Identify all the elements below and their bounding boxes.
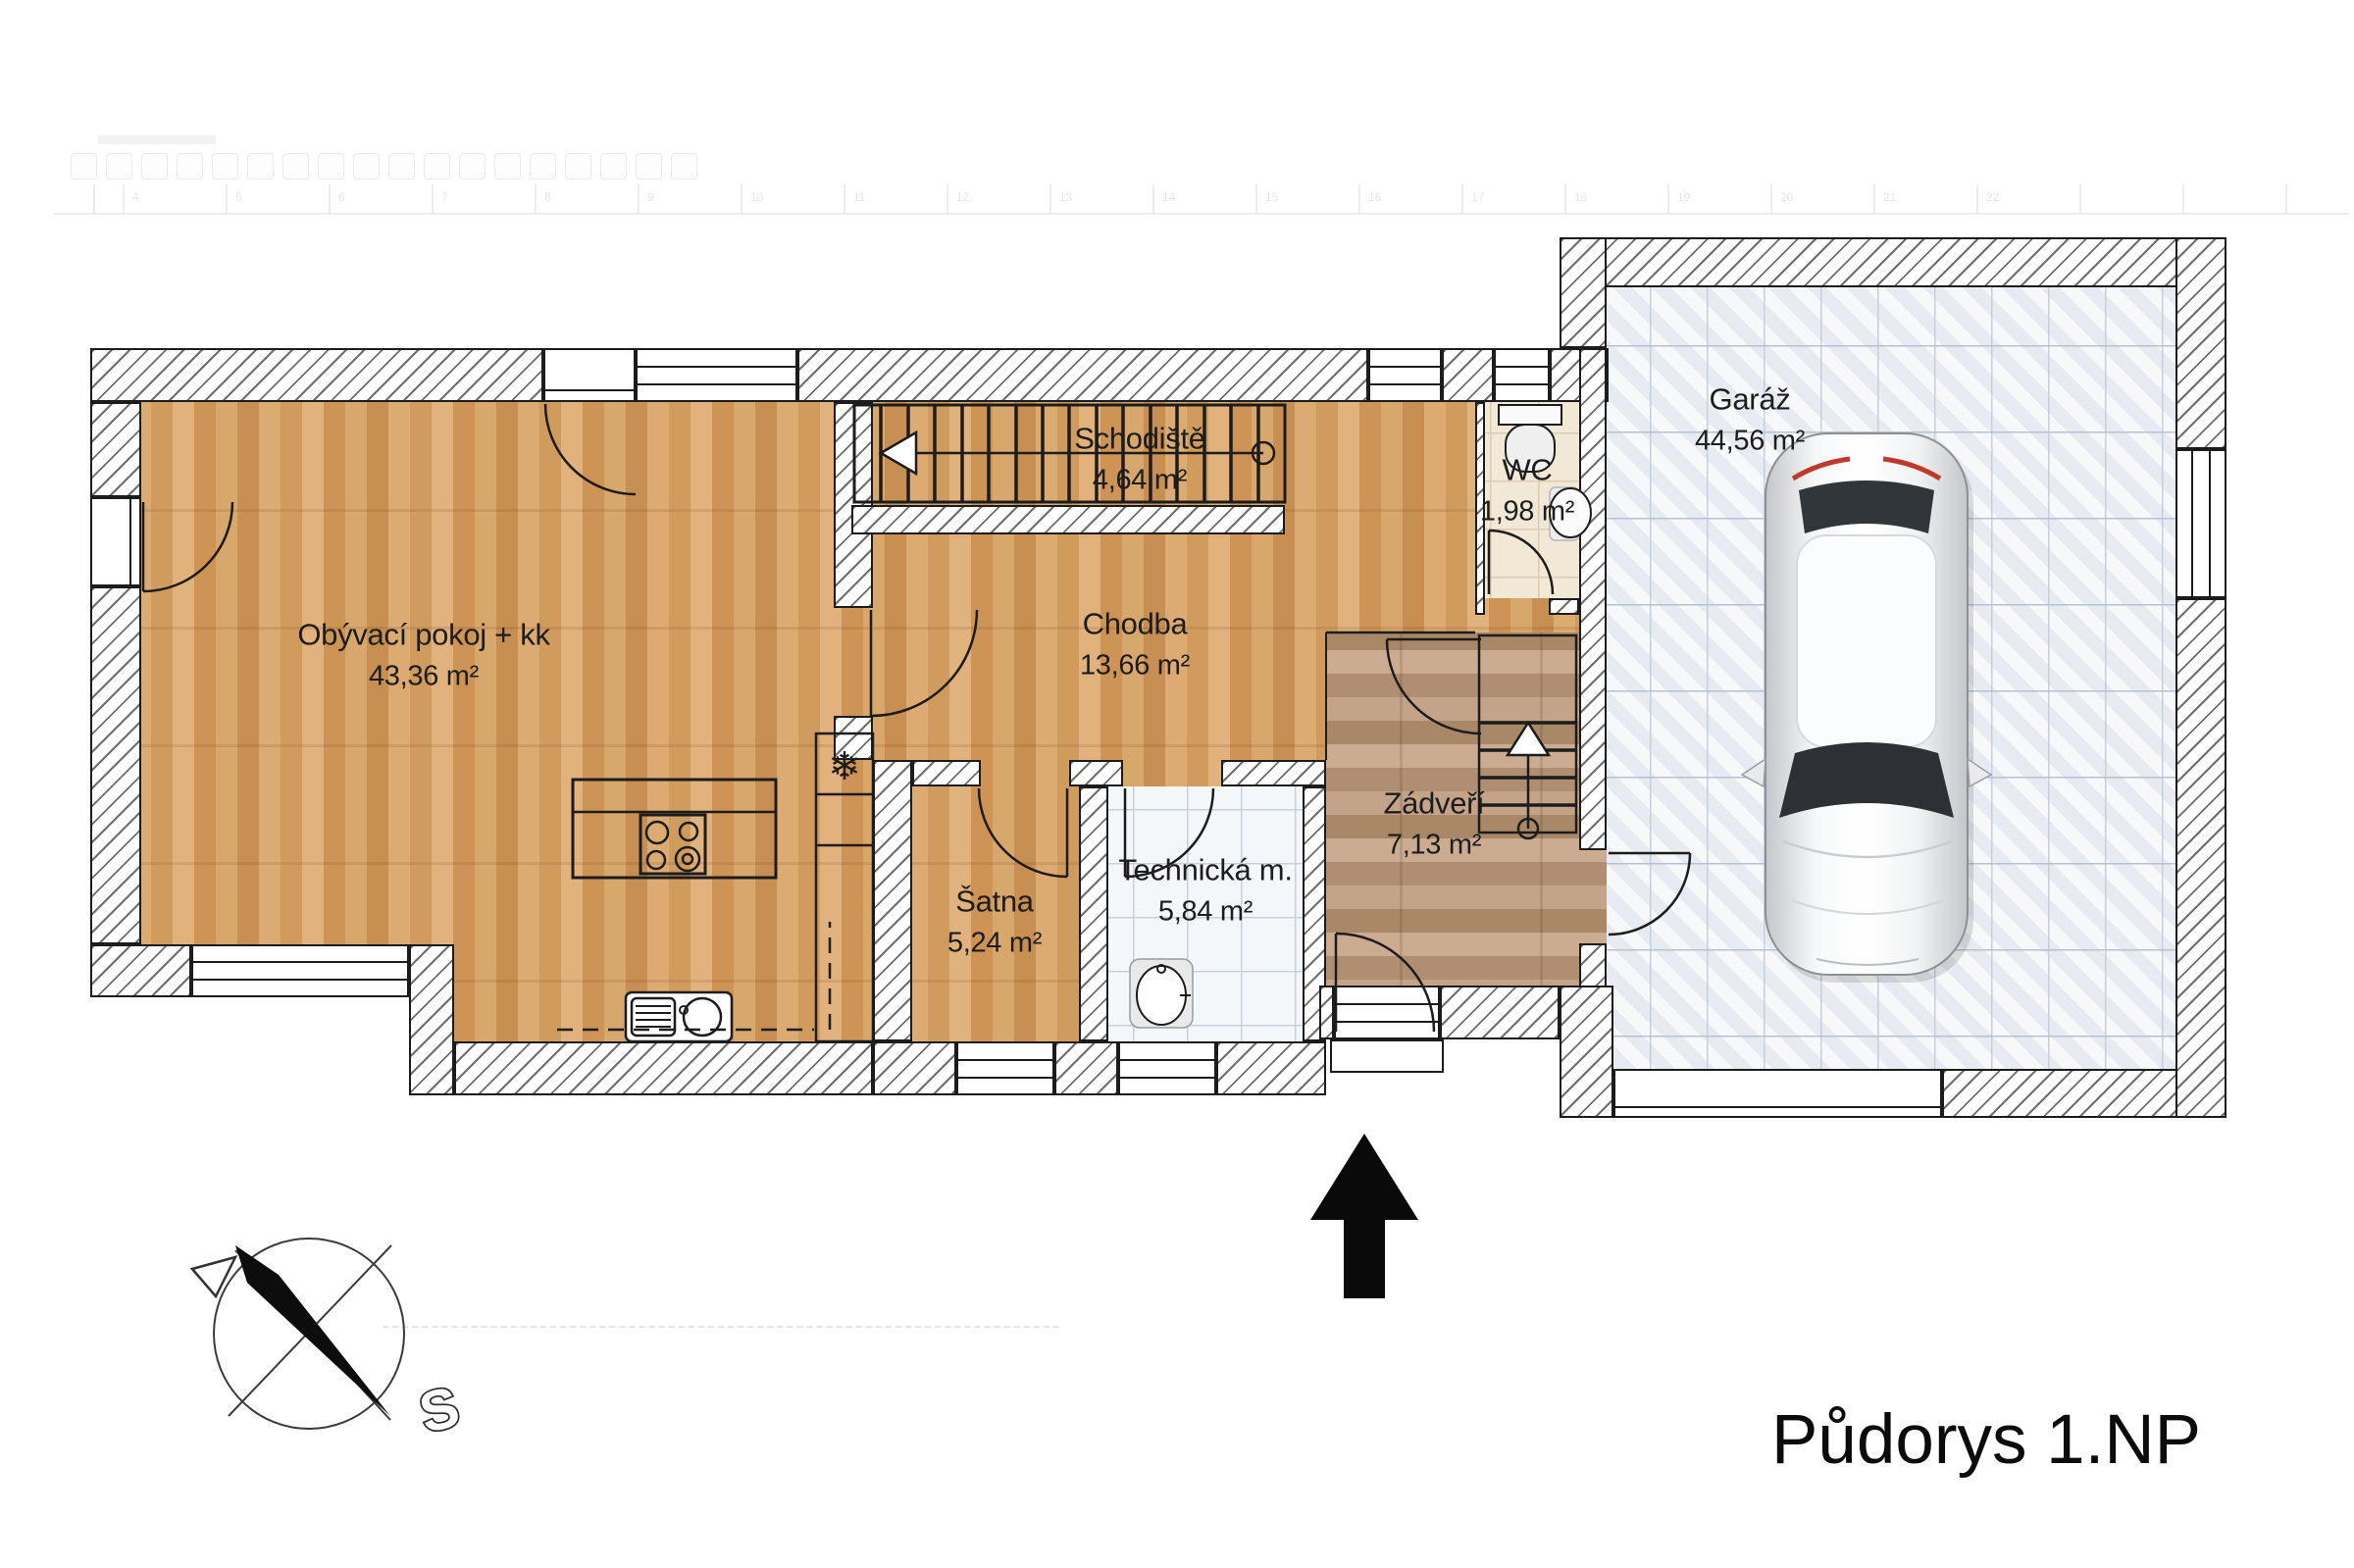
car-roof [1797,535,1936,747]
staircase-treads [854,405,1285,502]
room-name: Zádveří [1384,786,1485,821]
room-area: 7,13 m² [1384,825,1485,864]
fridge-snowflake-icon: ❄ [828,745,861,788]
plan-linework: ❄ [0,0,2354,1568]
door-swings [143,404,1690,1032]
wardrobe-door-arc [979,788,1067,877]
compass-north-icon: S [192,1239,466,1445]
balcony-door-arc [143,502,232,591]
room-label-technical: Technická m. 5,84 m² [1118,850,1292,932]
room-label-entry: Zádveří 7,13 m² [1384,784,1485,865]
room-area: 44,56 m² [1695,421,1805,460]
room-area: 13,66 m² [1080,645,1190,684]
kitchen-sink-icon [626,992,732,1041]
side-mirror-icon [1968,759,1991,786]
terrace-door-arc [545,404,636,494]
wc-door-arc [1489,531,1553,594]
car-top-view [1742,433,1991,983]
room-area: 43,36 m² [297,656,549,695]
room-area: 1,98 m² [1480,491,1574,531]
room-name: Schodiště [1074,422,1204,456]
drawing-title: Půdorys 1.NP [1771,1400,2201,1480]
entrance-arrow-icon [1310,1134,1418,1298]
living-hall-door-arc [871,610,977,716]
room-name: Garáž [1710,382,1791,417]
room-label-stairs: Schodiště 4,64 m² [1074,419,1204,500]
kitchen-island [573,780,776,878]
technical-sink-icon [1130,959,1193,1028]
toilet-tank-icon [1499,405,1561,425]
hall-entry-door-arc [1387,639,1481,733]
room-name: Obývací pokoj + kk [297,618,549,652]
room-name: WC [1502,453,1552,487]
entry-garage-door-arc [1609,853,1690,935]
entry-stairs [1479,635,1576,838]
room-name: Chodba [1083,607,1188,641]
side-mirror-icon [1742,759,1765,786]
room-label-wc: WC 1,98 m² [1480,450,1574,531]
room-label-wardrobe: Šatna 5,24 m² [947,882,1042,963]
room-area: 5,84 m² [1118,891,1292,931]
room-name: Technická m. [1118,853,1292,887]
room-label-living: Obývací pokoj + kk 43,36 m² [297,615,549,696]
room-label-hall: Chodba 13,66 m² [1080,604,1190,685]
entrance-door-arc [1336,934,1434,1032]
floorplan-canvas: 45678910111213141516171819202122 [0,0,2354,1568]
room-name: Šatna [955,885,1034,919]
room-area: 4,64 m² [1074,460,1204,499]
room-area: 5,24 m² [947,923,1042,962]
stair-up-arrow-icon [1508,723,1549,755]
stair-direction-arrow-icon [881,432,916,474]
compass-letter: S [413,1375,465,1445]
floor-change-lines [1326,632,1475,760]
room-label-garage: Garáž 44,56 m² [1695,379,1805,461]
